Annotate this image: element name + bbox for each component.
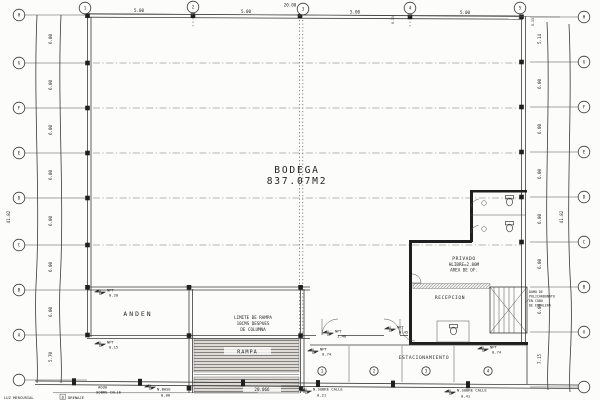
row-dim: 6.00 [48,215,53,226]
privado-area-note: AREA DE OF. [450,268,478,273]
domo-note-line1: DOMO DE [529,290,543,294]
npt-value: 0.74 [492,350,502,355]
rampa-length-dim: 20.066 [254,387,270,392]
row-dim: 6.00 [537,258,542,269]
row-dim: 6.00 [48,261,53,272]
row-dim: 6.00 [537,213,542,224]
row-dim: 7.15 [537,353,542,364]
rampa-area: RAMPA 20.066 [194,339,299,393]
limite-note-line1: LIMITE DE RAMPA [234,315,272,320]
row-dim: 5.70 [48,351,53,362]
row-dim: 6.00 [537,168,542,179]
bay-dim: 5.00 [460,10,471,15]
npt-value: 1.40 [337,334,347,339]
nsobre-calle-centro-label: N.SOBRE CALLE [313,386,343,391]
edge-dim: 0.15 [391,16,395,24]
row-dim: 6.00 [48,306,53,317]
row-dim: 6.00 [48,124,53,135]
domo-note-line3: EN CUBO [529,299,543,303]
npt-value: 0.45 [399,330,408,335]
bodega-area-label: 837.07M2 [267,176,328,187]
edge-dim: 0.15 [531,18,535,26]
nbase-label: N.BASE [157,387,171,392]
room-label-estacionamiento: ESTACIONAMIENTO [399,355,450,361]
paper-background [0,0,600,400]
room-label-recepcion: RECEPCION [435,295,465,301]
nsobre-calle-der-value: 0.41 [461,393,471,398]
room-label-anden: ANDEN [123,310,152,318]
room-label-rampa: RAMPA [237,350,258,356]
row-dim: 6.00 [537,123,542,134]
row-dim: 6.00 [537,78,542,89]
nsobre-calle-centro-value: 0.21 [317,392,327,397]
overall-width-dim: 20.00 [284,2,297,7]
row-dim: 6.00 [537,303,542,314]
room-label-bodega: BODEGA [274,165,319,176]
limite-note-line3: DE COLUMNA [240,327,266,332]
bay-dim: 5.00 [134,8,145,13]
row-dim: 6.00 [48,79,53,90]
floor-plan-page: RAMPA 20.066 LIMITE DE RAMPA 10CMS DESPU… [0,0,600,400]
domo-note-line2: POLICARBONATO [529,295,555,299]
agua-label-line2: SOBRE CALLE [96,389,122,394]
drenaje-label: DRENAJE [68,395,85,400]
npt-value: 0.15 [109,345,118,350]
npt-value: 0.74 [322,352,332,357]
nbase-value: 0.00 [161,393,171,398]
limite-note-line2: 10CMS DESPUES [237,321,270,326]
row-dim: 5.14 [537,33,542,44]
overall-height-dim: 41.82 [559,210,564,223]
npt-value: 0.20 [109,293,119,298]
luz-mercurial-label: LUZ MERCURIAL [4,395,34,400]
floor-plan-svg: RAMPA 20.066 LIMITE DE RAMPA 10CMS DESPU… [0,0,600,400]
bay-dim: 5.00 [241,9,252,14]
row-dim: 6.00 [48,33,53,44]
privado-height-note: HLIBRE=2.80M [449,262,480,267]
bay-dim: 5.00 [350,9,361,14]
nsobre-calle-der-label: N.SOBRE CALLE [457,387,487,392]
row-dim: 6.00 [48,169,53,180]
overall-height-dim: 41.82 [6,210,11,223]
